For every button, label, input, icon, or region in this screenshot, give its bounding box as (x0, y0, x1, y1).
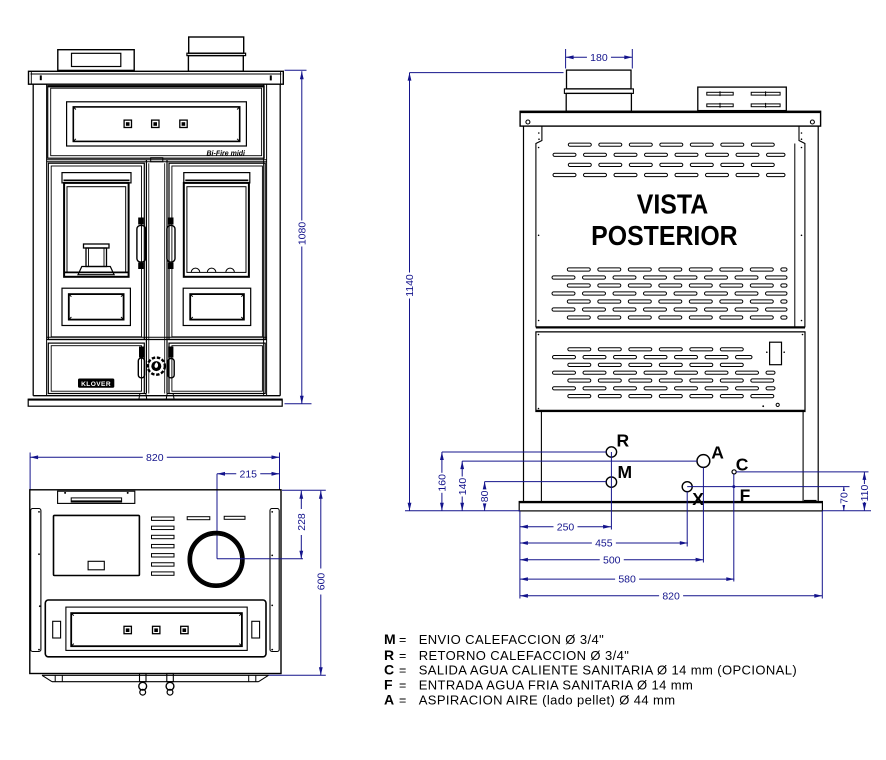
svg-text:R: R (384, 647, 394, 663)
svg-text:580: 580 (618, 574, 636, 586)
svg-text:VISTA: VISTA (637, 188, 709, 219)
svg-text:180: 180 (590, 52, 608, 64)
svg-text:KLOVER: KLOVER (81, 381, 111, 388)
svg-text:820: 820 (662, 590, 680, 602)
svg-text:160: 160 (437, 474, 449, 492)
svg-text:SALIDA AGUA CALIENTE SANITARIA: SALIDA AGUA CALIENTE SANITARIA Ø 14 mm (… (419, 663, 797, 678)
svg-text:Bi-Fire midi: Bi-Fire midi (206, 151, 246, 158)
svg-text:C: C (384, 662, 394, 678)
svg-text:=: = (399, 664, 406, 678)
svg-text:=: = (399, 679, 406, 693)
svg-text:600: 600 (315, 573, 327, 591)
svg-text:215: 215 (239, 468, 257, 480)
svg-text:=: = (399, 649, 406, 663)
svg-text:X: X (692, 489, 704, 509)
svg-text:228: 228 (296, 513, 308, 531)
svg-text:A: A (384, 691, 394, 707)
svg-text:POSTERIOR: POSTERIOR (591, 220, 738, 251)
svg-text:=: = (399, 693, 406, 707)
svg-text:1080: 1080 (296, 222, 308, 246)
svg-text:ENTRADA AGUA FRIA SANITARIA Ø: ENTRADA AGUA FRIA SANITARIA Ø 14 mm (419, 678, 694, 693)
svg-text:110: 110 (859, 484, 871, 501)
svg-text:80: 80 (479, 490, 491, 502)
svg-text:F: F (384, 677, 393, 693)
svg-text:RETORNO CALEFACCION Ø 3/4": RETORNO CALEFACCION Ø 3/4" (419, 648, 630, 663)
svg-text:140: 140 (457, 478, 469, 496)
svg-text:1140: 1140 (404, 274, 416, 297)
svg-text:=: = (399, 633, 406, 647)
svg-text:70: 70 (838, 492, 850, 504)
svg-text:820: 820 (146, 452, 164, 464)
svg-text:M: M (618, 462, 633, 482)
svg-text:M: M (384, 631, 396, 647)
svg-text:ENVIO CALEFACCION Ø 3/4": ENVIO CALEFACCION Ø 3/4" (419, 632, 604, 647)
svg-text:ASPIRACION AIRE (lado pellet): ASPIRACION AIRE (lado pellet) Ø 44 mm (419, 692, 676, 707)
svg-text:R: R (617, 431, 630, 451)
svg-text:A: A (711, 442, 724, 462)
svg-text:500: 500 (603, 554, 621, 566)
svg-text:F: F (740, 485, 751, 505)
svg-text:250: 250 (557, 521, 575, 533)
svg-text:455: 455 (595, 538, 613, 550)
